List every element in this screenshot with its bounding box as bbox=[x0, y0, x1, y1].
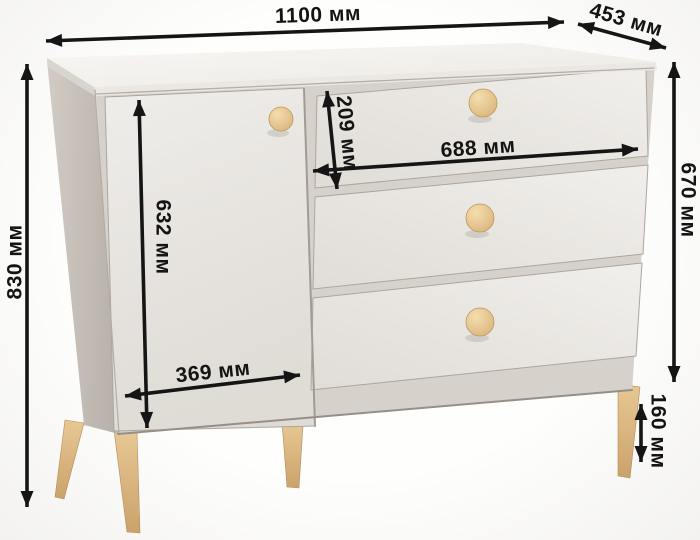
dim-label-depth: 453 мм bbox=[587, 0, 665, 41]
dim-label-door-height: 632 мм bbox=[152, 200, 175, 275]
leg-rear-left bbox=[55, 420, 84, 499]
furniture-dimension-diagram: 1100 мм 453 мм 830 мм 670 мм 160 мм 632 … bbox=[0, 0, 700, 540]
leg-front-left bbox=[114, 430, 140, 533]
diagram-canvas: 1100 мм 453 мм 830 мм 670 мм 160 мм 632 … bbox=[0, 0, 700, 540]
leg-front-right bbox=[618, 384, 640, 478]
leg-rear-center bbox=[282, 422, 303, 488]
dim-label-overall-width: 1100 мм bbox=[275, 2, 362, 28]
drawer-knob-middle bbox=[466, 204, 494, 232]
drawer-knob-bottom bbox=[466, 308, 494, 336]
door-knob bbox=[269, 107, 293, 131]
drawer-knob-top bbox=[469, 89, 497, 117]
dim-label-leg-height: 160 мм bbox=[647, 394, 670, 469]
dim-label-overall-height: 830 мм bbox=[4, 225, 27, 300]
dim-label-body-height: 670 мм bbox=[677, 163, 700, 238]
